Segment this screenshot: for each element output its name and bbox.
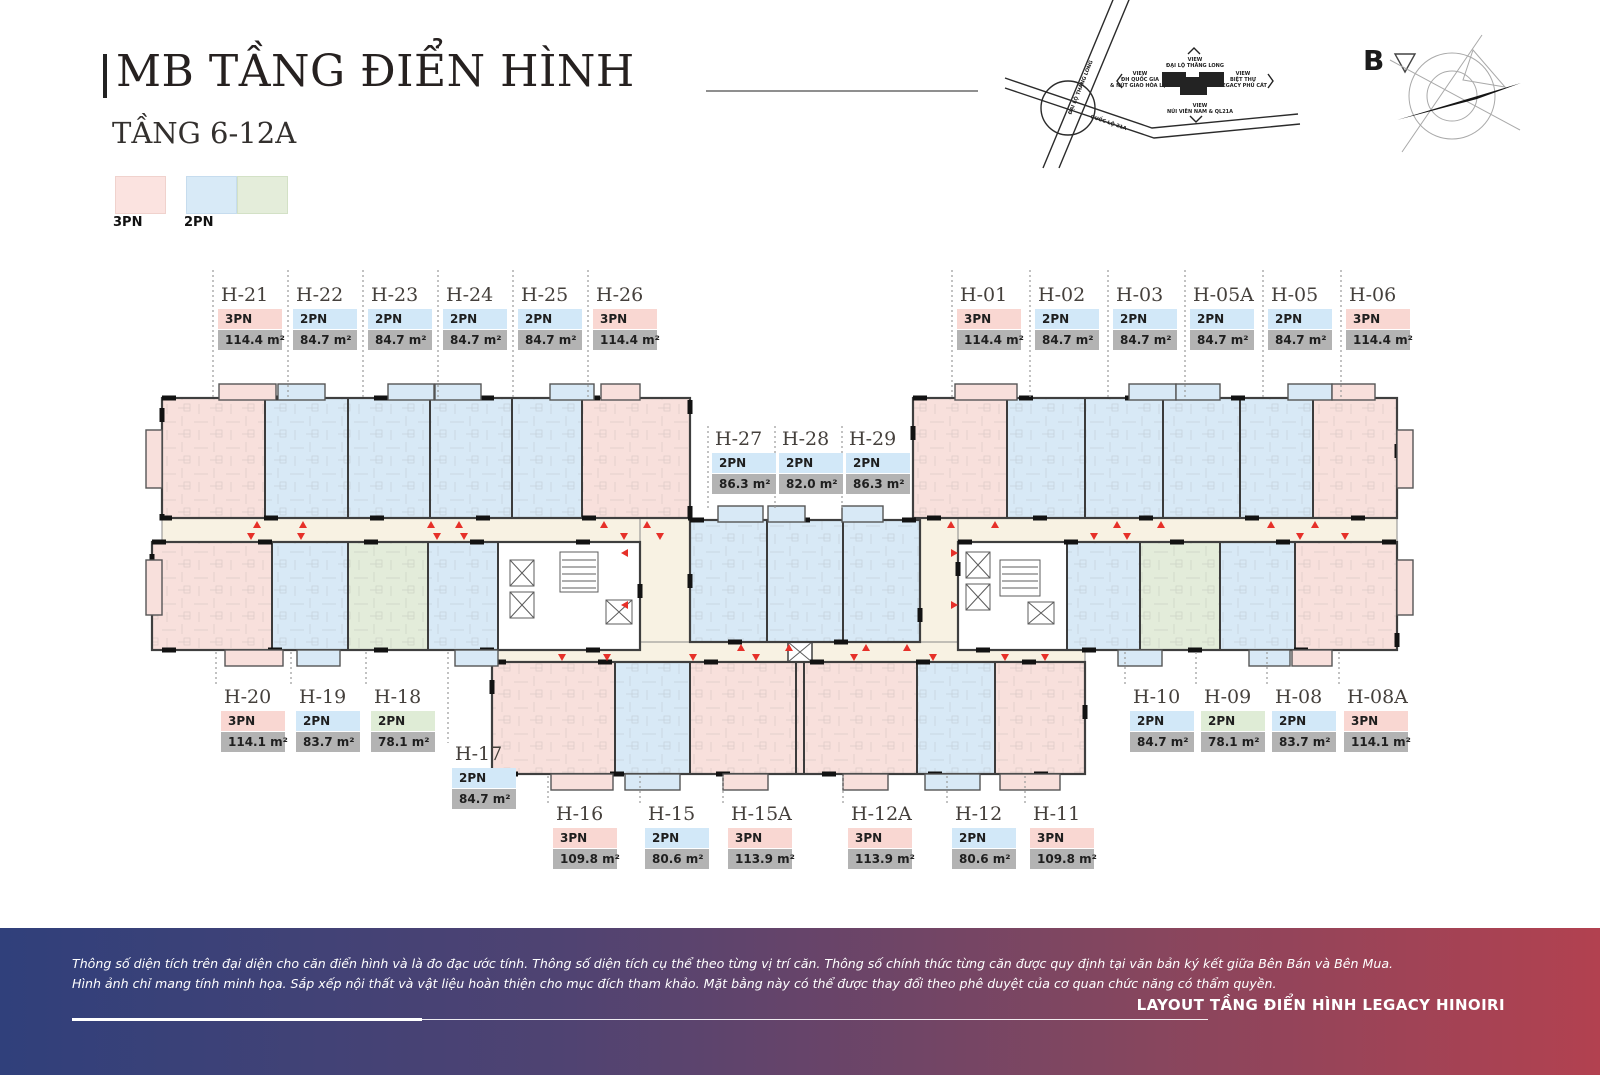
- svg-text:LEGACY PHÚ CÁT: LEGACY PHÚ CÁT: [1219, 82, 1267, 89]
- unit-area-badge: 114.4 m²: [1346, 330, 1410, 350]
- unit-area-badge: 84.7 m²: [1035, 330, 1099, 350]
- unit-bedrooms-badge: 2PN: [452, 768, 516, 788]
- unit-id: H-03: [1116, 286, 1179, 306]
- unit-id: H-26: [596, 286, 659, 306]
- svg-text:NÚI VIÊN NAM & QL21A: NÚI VIÊN NAM & QL21A: [1167, 107, 1233, 115]
- compass-letter: B: [1363, 44, 1384, 77]
- unit-label-H-05A: H-05A2PN84.7 m²: [1190, 286, 1256, 350]
- unit-bedrooms-badge: 2PN: [296, 711, 360, 731]
- unit-id: H-15: [648, 805, 711, 825]
- unit-label-H-10: H-102PN84.7 m²: [1130, 688, 1196, 752]
- unit-bedrooms-badge: 2PN: [368, 309, 432, 329]
- unit-bedrooms-badge: 2PN: [645, 828, 709, 848]
- unit-label-H-08: H-082PN83.7 m²: [1272, 688, 1338, 752]
- unit-label-H-03: H-032PN84.7 m²: [1113, 286, 1179, 350]
- unit-id: H-27: [715, 430, 778, 450]
- elevator-core-right: [958, 542, 1067, 650]
- unit-bedrooms-badge: 3PN: [848, 828, 912, 848]
- unit-id: H-06: [1349, 286, 1412, 306]
- unit-area-badge: 78.1 m²: [1201, 732, 1265, 752]
- unit-label-H-22: H-222PN84.7 m²: [293, 286, 359, 350]
- unit-label-H-26: H-263PN114.4 m²: [593, 286, 659, 350]
- unit-area-badge: 82.0 m²: [779, 474, 843, 494]
- unit-label-H-27: H-272PN86.3 m²: [712, 430, 778, 494]
- unit-area-badge: 109.8 m²: [553, 849, 617, 869]
- unit-bedrooms-badge: 3PN: [1344, 711, 1408, 731]
- unit-area-badge: 113.9 m²: [728, 849, 792, 869]
- unit-bedrooms-badge: 3PN: [728, 828, 792, 848]
- unit-id: H-21: [221, 286, 284, 306]
- unit-bedrooms-badge: 3PN: [553, 828, 617, 848]
- unit-id: H-18: [374, 688, 437, 708]
- unit-id: H-25: [521, 286, 584, 306]
- unit-id: H-16: [556, 805, 619, 825]
- unit-bedrooms-badge: 2PN: [443, 309, 507, 329]
- svg-text:& NÚT GIAO HÒA LẠC: & NÚT GIAO HÒA LẠC: [1110, 82, 1170, 89]
- unit-id: H-24: [446, 286, 509, 306]
- unit-area-badge: 84.7 m²: [1113, 330, 1177, 350]
- unit-area-badge: 84.7 m²: [1190, 330, 1254, 350]
- unit-bedrooms-badge: 3PN: [1346, 309, 1410, 329]
- unit-bedrooms-badge: 2PN: [371, 711, 435, 731]
- unit-area-badge: 84.7 m²: [452, 789, 516, 809]
- unit-area-badge: 113.9 m²: [848, 849, 912, 869]
- unit-label-H-15: H-152PN80.6 m²: [645, 805, 711, 869]
- unit-area-badge: 84.7 m²: [1268, 330, 1332, 350]
- unit-label-H-29: H-292PN86.3 m²: [846, 430, 912, 494]
- unit-id: H-10: [1133, 688, 1196, 708]
- unit-id: H-28: [782, 430, 845, 450]
- unit-bedrooms-badge: 3PN: [221, 711, 285, 731]
- unit-bedrooms-badge: 3PN: [1030, 828, 1094, 848]
- unit-area-badge: 78.1 m²: [371, 732, 435, 752]
- unit-label-H-17: H-172PN84.7 m²: [452, 745, 518, 809]
- unit-label-H-02: H-022PN84.7 m²: [1035, 286, 1101, 350]
- unit-id: H-29: [849, 430, 912, 450]
- unit-id: H-12: [955, 805, 1018, 825]
- unit-id: H-19: [299, 688, 362, 708]
- unit-area-badge: 83.7 m²: [296, 732, 360, 752]
- svg-text:ĐẠI LỘ THĂNG LONG: ĐẠI LỘ THĂNG LONG: [1166, 62, 1224, 69]
- unit-bedrooms-badge: 3PN: [218, 309, 282, 329]
- unit-bedrooms-badge: 2PN: [712, 453, 776, 473]
- svg-text:BIỆT THỰ: BIỆT THỰ: [1230, 75, 1257, 83]
- unit-id: H-02: [1038, 286, 1101, 306]
- unit-label-H-20: H-203PN114.1 m²: [221, 688, 287, 752]
- road2-label: QUỐC LỘ 21A: [1089, 112, 1128, 132]
- unit-id: H-01: [960, 286, 1023, 306]
- unit-label-H-21: H-213PN114.4 m²: [218, 286, 284, 350]
- building-footprint-icon: [1162, 72, 1224, 95]
- unit-label-H-08A: H-08A3PN114.1 m²: [1344, 688, 1410, 752]
- unit-bedrooms-badge: 2PN: [1190, 309, 1254, 329]
- elevator-core-left: [498, 542, 640, 650]
- unit-bedrooms-badge: 2PN: [1268, 309, 1332, 329]
- chevron-down-icon: [1190, 116, 1202, 122]
- unit-area-badge: 80.6 m²: [952, 849, 1016, 869]
- unit-label-H-23: H-232PN84.7 m²: [368, 286, 434, 350]
- unit-label-H-18: H-182PN78.1 m²: [371, 688, 437, 752]
- unit-label-H-16: H-163PN109.8 m²: [553, 805, 619, 869]
- unit-bedrooms-badge: 3PN: [593, 309, 657, 329]
- unit-bedrooms-badge: 2PN: [518, 309, 582, 329]
- compass-icon: B: [1363, 35, 1521, 152]
- svg-text:ĐH QUỐC GIA: ĐH QUỐC GIA: [1121, 75, 1159, 83]
- unit-area-badge: 83.7 m²: [1272, 732, 1336, 752]
- unit-id: H-05A: [1193, 286, 1256, 306]
- unit-id: H-23: [371, 286, 434, 306]
- site-map: ĐẠI LỘ THĂNG LONG QUỐC LỘ 21A VIEW ĐẠI L…: [1005, 0, 1300, 168]
- unit-label-H-05: H-052PN84.7 m²: [1268, 286, 1334, 350]
- unit-area-badge: 80.6 m²: [645, 849, 709, 869]
- unit-label-H-09: H-092PN78.1 m²: [1201, 688, 1267, 752]
- page: ĐẠI LỘ THĂNG LONG QUỐC LỘ 21A VIEW ĐẠI L…: [0, 0, 1600, 1075]
- stair-core-center: [788, 642, 812, 662]
- unit-area-badge: 84.7 m²: [1130, 732, 1194, 752]
- unit-label-H-12: H-122PN80.6 m²: [952, 805, 1018, 869]
- unit-label-H-11: H-113PN109.8 m²: [1030, 805, 1096, 869]
- unit-bedrooms-badge: 2PN: [293, 309, 357, 329]
- unit-id: H-08: [1275, 688, 1338, 708]
- unit-area-badge: 109.8 m²: [1030, 849, 1094, 869]
- unit-label-H-15A: H-15A3PN113.9 m²: [728, 805, 794, 869]
- floor-plan-canvas: ĐẠI LỘ THĂNG LONG QUỐC LỘ 21A VIEW ĐẠI L…: [0, 0, 1600, 1075]
- unit-id: H-05: [1271, 286, 1334, 306]
- unit-bedrooms-badge: 2PN: [1130, 711, 1194, 731]
- unit-label-H-12A: H-12A3PN113.9 m²: [848, 805, 914, 869]
- unit-area-badge: 84.7 m²: [293, 330, 357, 350]
- unit-bedrooms-badge: 2PN: [1272, 711, 1336, 731]
- unit-area-badge: 84.7 m²: [518, 330, 582, 350]
- unit-id: H-12A: [851, 805, 914, 825]
- unit-area-badge: 114.4 m²: [593, 330, 657, 350]
- unit-area-badge: 114.4 m²: [218, 330, 282, 350]
- unit-bedrooms-badge: 2PN: [952, 828, 1016, 848]
- unit-id: H-15A: [731, 805, 794, 825]
- unit-bedrooms-badge: 3PN: [957, 309, 1021, 329]
- unit-bedrooms-badge: 2PN: [1035, 309, 1099, 329]
- unit-area-badge: 114.1 m²: [1344, 732, 1408, 752]
- unit-id: H-11: [1033, 805, 1096, 825]
- unit-area-badge: 84.7 m²: [368, 330, 432, 350]
- unit-area-badge: 84.7 m²: [443, 330, 507, 350]
- chevron-up-icon: [1188, 48, 1200, 54]
- unit-bedrooms-badge: 2PN: [846, 453, 910, 473]
- unit-bedrooms-badge: 2PN: [1113, 309, 1177, 329]
- unit-label-H-28: H-282PN82.0 m²: [779, 430, 845, 494]
- unit-area-badge: 86.3 m²: [846, 474, 910, 494]
- chevron-right-icon: [1268, 74, 1273, 88]
- unit-id: H-08A: [1347, 688, 1410, 708]
- unit-bedrooms-badge: 2PN: [1201, 711, 1265, 731]
- unit-label-H-25: H-252PN84.7 m²: [518, 286, 584, 350]
- unit-id: H-17: [455, 745, 518, 765]
- unit-id: H-20: [224, 688, 287, 708]
- unit-area-badge: 114.4 m²: [957, 330, 1021, 350]
- unit-id: H-22: [296, 286, 359, 306]
- unit-area-badge: 86.3 m²: [712, 474, 776, 494]
- unit-label-H-24: H-242PN84.7 m²: [443, 286, 509, 350]
- unit-bedrooms-badge: 2PN: [779, 453, 843, 473]
- unit-area-badge: 114.1 m²: [221, 732, 285, 752]
- unit-label-H-06: H-063PN114.4 m²: [1346, 286, 1412, 350]
- unit-label-H-01: H-013PN114.4 m²: [957, 286, 1023, 350]
- unit-label-H-19: H-192PN83.7 m²: [296, 688, 362, 752]
- unit-id: H-09: [1204, 688, 1267, 708]
